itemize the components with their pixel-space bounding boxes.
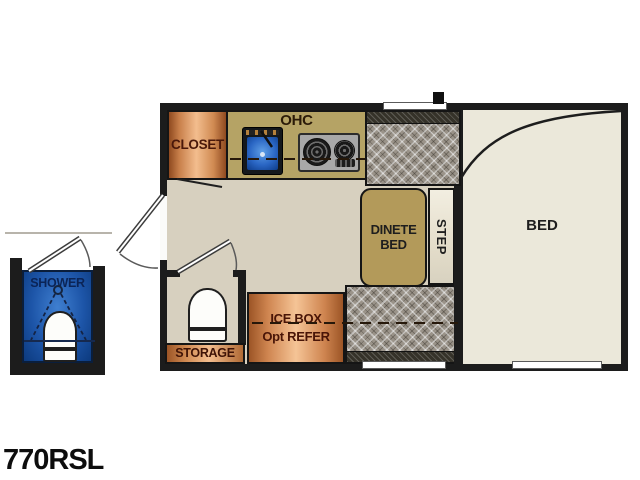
bed-label: BED <box>526 218 558 235</box>
storage-cabinet: STORAGE <box>165 343 245 364</box>
step-area: STEP <box>428 188 455 285</box>
dinette-label-line2: BED <box>380 238 407 252</box>
stove-controls-icon <box>335 159 355 167</box>
bed-platform-wall <box>454 186 462 364</box>
shower-frame <box>10 363 105 375</box>
stove-icon <box>298 133 360 172</box>
closet-label: CLOSET <box>171 138 224 153</box>
burner-icon <box>303 138 331 166</box>
dinette-table: DINETE BED <box>360 188 427 287</box>
model-label: 770RSL <box>3 444 103 477</box>
sink-drain-icon <box>260 152 265 157</box>
sink-basin-icon <box>247 137 278 170</box>
sink-controls-icon <box>246 130 279 135</box>
bed-area: BED <box>461 110 621 364</box>
dinette-seat-bottom <box>345 285 456 364</box>
sink-icon <box>242 127 283 175</box>
storage-label: STORAGE <box>175 347 235 361</box>
shower-frame <box>93 266 105 375</box>
dinette-label-line1: DINETE <box>371 223 417 237</box>
shower-door-icon <box>29 238 90 271</box>
window <box>512 361 602 369</box>
step-label: STEP <box>434 219 449 255</box>
door-swing-arc <box>81 240 90 267</box>
icebox-label-line1: ICE BOX <box>270 312 321 326</box>
entry-door-opening <box>160 196 167 260</box>
entry-door-icon <box>118 195 163 268</box>
door-swing-arc <box>120 254 158 268</box>
floorplan-canvas: CLOSET OHC DINETE BED STEP BED ICE BOX O… <box>0 0 640 480</box>
icebox-cabinet: ICE BOX Opt REFER <box>247 292 345 364</box>
icebox-label-line2: Opt REFER <box>262 330 329 344</box>
dinette-seat-top <box>365 110 461 186</box>
closet-box: CLOSET <box>167 110 228 180</box>
shower-seat-icon <box>43 311 77 362</box>
roof-vent-icon <box>433 92 444 104</box>
ohc-label: OHC <box>226 112 367 129</box>
bathroom-wall <box>160 270 180 277</box>
burner-icon <box>334 140 355 161</box>
toilet-seat-line <box>189 327 226 331</box>
bathroom-wall <box>233 270 246 277</box>
bathroom-wall <box>238 270 246 345</box>
shower-frame <box>10 258 22 375</box>
seat-backrest <box>367 112 459 124</box>
shower-seat-line <box>44 347 76 351</box>
shower-label: SHOWER <box>24 276 91 290</box>
window <box>362 361 446 369</box>
toilet-icon <box>188 288 227 342</box>
